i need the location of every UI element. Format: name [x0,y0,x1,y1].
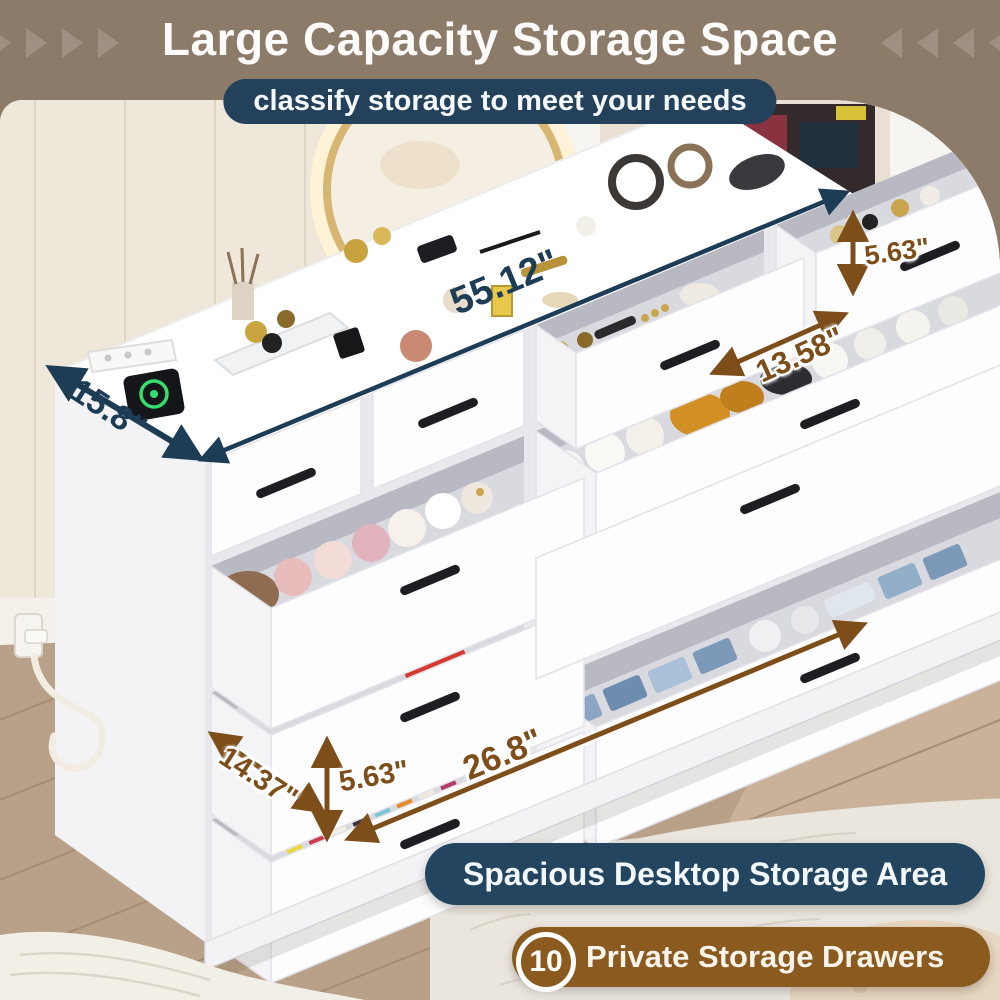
desktop-storage-callout: Spacious Desktop Storage Area [425,843,985,905]
banner-subtitle: classify storage to meet your needs [223,79,776,124]
chevron-left-icon [989,28,1000,58]
desktop-storage-text: Spacious Desktop Storage Area [463,856,947,893]
drawer-count-badge: 10 [516,932,576,992]
banner: Large Capacity Storage Space classify st… [0,0,1000,130]
chevron-left-icon [881,28,902,58]
product-infographic: Large Capacity Storage Space classify st… [0,0,1000,1000]
drawers-callout: 10 Private Storage Drawers [512,927,990,987]
banner-title: Large Capacity Storage Space [0,12,1000,66]
drawers-text: Private Storage Drawers [586,939,944,975]
bedroom-photo: Levi's [0,100,1000,1000]
chevron-left-icons [881,28,1000,58]
chevron-left-icon [917,28,938,58]
chevron-left-icon [953,28,974,58]
